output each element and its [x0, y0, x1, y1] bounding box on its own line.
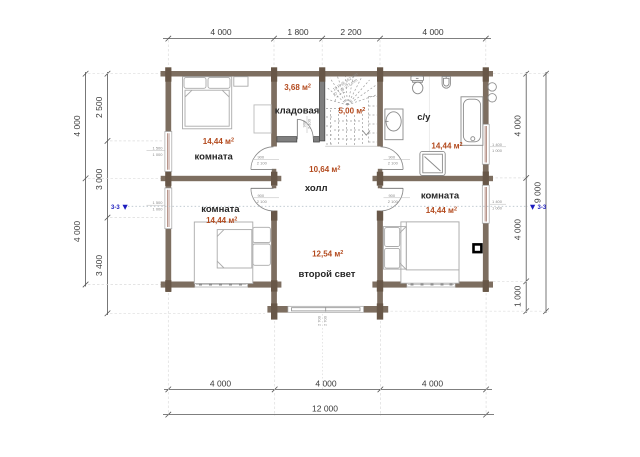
- svg-text:10,64 м2: 10,64 м2: [309, 165, 340, 174]
- svg-text:1 500: 1 500: [152, 200, 163, 205]
- svg-text:12,54 м2: 12,54 м2: [312, 250, 343, 259]
- svg-text:4 000: 4 000: [210, 27, 232, 37]
- svg-text:холл: холл: [305, 183, 328, 194]
- svg-text:кладовая: кладовая: [275, 106, 320, 117]
- svg-text:4 000: 4 000: [513, 219, 523, 241]
- svg-text:4 000: 4 000: [315, 379, 337, 389]
- svg-text:14,44 м2: 14,44 м2: [206, 216, 237, 225]
- svg-text:3-3: 3-3: [538, 205, 547, 211]
- svg-text:2 100: 2 100: [257, 160, 268, 165]
- svg-text:1 800: 1 800: [287, 27, 309, 37]
- svg-text:14,44 м2: 14,44 м2: [203, 137, 234, 146]
- svg-text:1 000: 1 000: [152, 206, 163, 211]
- svg-text:второй свет: второй свет: [299, 269, 356, 280]
- svg-text:3 000: 3 000: [94, 168, 104, 190]
- svg-text:1 000: 1 000: [152, 152, 163, 157]
- svg-text:3 400: 3 400: [94, 255, 104, 277]
- svg-text:2 100: 2 100: [307, 118, 312, 129]
- svg-text:комната: комната: [201, 204, 240, 215]
- svg-text:4 000: 4 000: [210, 379, 232, 389]
- svg-text:1 000: 1 000: [492, 148, 503, 153]
- svg-text:5,00 м2: 5,00 м2: [339, 107, 366, 116]
- svg-text:900: 900: [388, 154, 395, 159]
- svg-text:4 000: 4 000: [72, 221, 82, 243]
- svg-text:14,44 м2: 14,44 м2: [431, 142, 462, 151]
- svg-text:3,68 м2: 3,68 м2: [284, 83, 311, 92]
- svg-text:3-3: 3-3: [111, 205, 120, 211]
- svg-text:4 000: 4 000: [422, 379, 444, 389]
- svg-text:2 500: 2 500: [94, 96, 104, 118]
- svg-text:1 500: 1 500: [152, 146, 163, 151]
- svg-text:12 000: 12 000: [312, 404, 338, 414]
- svg-text:4 000: 4 000: [513, 115, 523, 137]
- svg-text:1 000: 1 000: [492, 205, 503, 210]
- svg-text:4 000: 4 000: [422, 27, 444, 37]
- svg-text:1 400: 1 400: [492, 199, 503, 204]
- svg-text:900: 900: [257, 193, 264, 198]
- svg-text:2 100: 2 100: [388, 199, 399, 204]
- svg-text:комната: комната: [195, 152, 234, 163]
- svg-text:2 200: 2 200: [340, 27, 362, 37]
- svg-text:комната: комната: [421, 191, 460, 202]
- svg-text:с/у: с/у: [417, 112, 431, 123]
- svg-text:14,44 м2: 14,44 м2: [426, 206, 457, 215]
- svg-text:9 000: 9 000: [533, 182, 543, 204]
- svg-text:900: 900: [257, 154, 264, 159]
- svg-text:2 700: 2 700: [317, 315, 322, 326]
- svg-text:2 100: 2 100: [388, 160, 399, 165]
- svg-text:1 400: 1 400: [492, 142, 503, 147]
- svg-text:2 700: 2 700: [323, 315, 328, 326]
- svg-text:900: 900: [388, 193, 395, 198]
- svg-text:4 000: 4 000: [72, 115, 82, 137]
- svg-text:2 100: 2 100: [257, 199, 268, 204]
- svg-text:1 000: 1 000: [513, 285, 523, 307]
